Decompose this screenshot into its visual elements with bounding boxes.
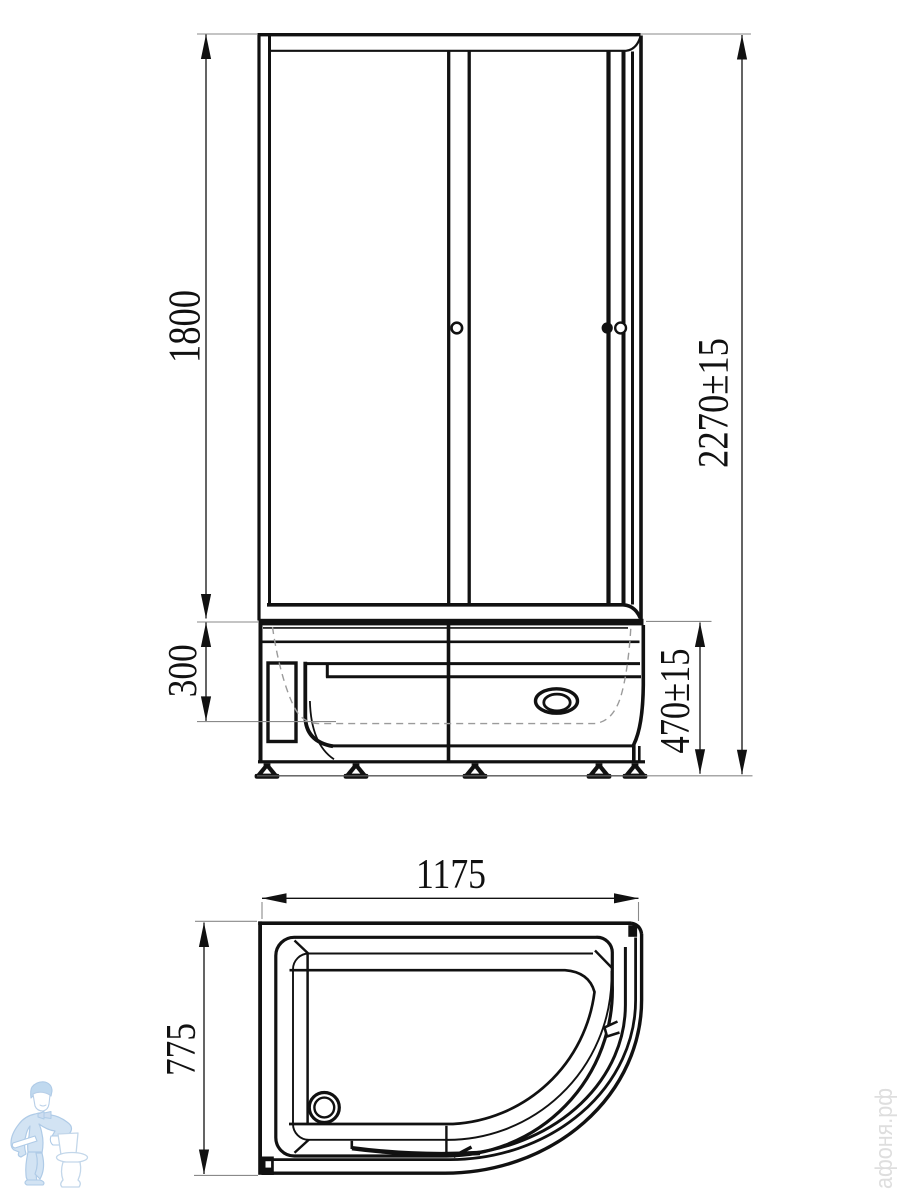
svg-text:300: 300 — [159, 644, 205, 697]
svg-text:470±15: 470±15 — [653, 649, 699, 754]
svg-text:775: 775 — [159, 1023, 205, 1076]
svg-text:1800: 1800 — [160, 290, 210, 363]
svg-text:1175: 1175 — [416, 852, 486, 898]
svg-text:афоня.рф: афоня.рф — [871, 1088, 898, 1189]
svg-text:2270±15: 2270±15 — [691, 338, 738, 468]
